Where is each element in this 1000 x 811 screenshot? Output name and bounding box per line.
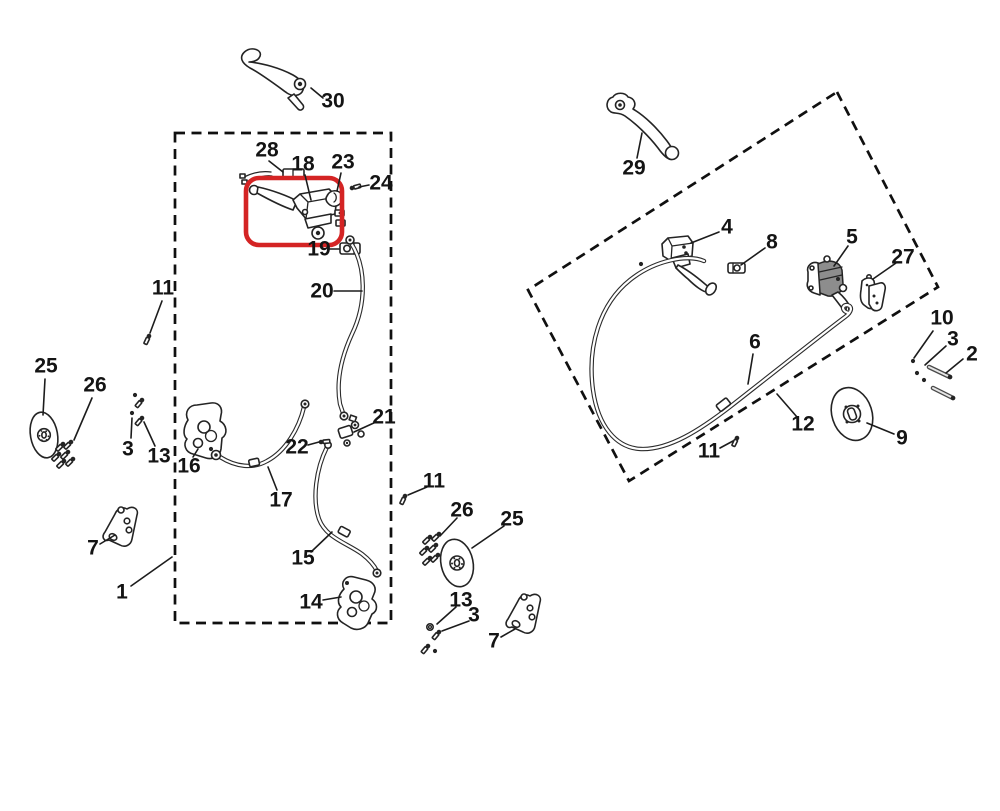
- front-upper-brake-hose-drawing: [339, 236, 363, 420]
- callout-label-13: 13: [147, 445, 170, 468]
- washer-icon: [433, 649, 437, 653]
- callout-label-1: 1: [116, 581, 128, 604]
- callout-label-30: 30: [321, 90, 344, 113]
- brake-disc-rear-drawing: [825, 382, 880, 446]
- callout-label-15: 15: [291, 547, 315, 570]
- callout-leader-17: [268, 467, 277, 490]
- callout-label-19: 19: [307, 238, 330, 261]
- callout-leader-7: [501, 629, 515, 637]
- callout-label-18: 18: [291, 153, 315, 176]
- callout-label-3: 3: [468, 604, 480, 627]
- washer-icon: [133, 393, 137, 397]
- front-brake-caliper-drawing: [184, 403, 226, 460]
- callout-label-11: 11: [152, 277, 175, 300]
- callout-label-17: 17: [269, 489, 292, 512]
- callout-leader-1: [131, 557, 172, 586]
- callout-label-8: 8: [766, 231, 778, 254]
- callout-leader-3: [442, 621, 469, 631]
- callout-label-24: 24: [369, 172, 393, 195]
- callout-leader-5: [834, 246, 848, 266]
- bolt-icon: [65, 456, 76, 467]
- callout-leader-28: [269, 161, 283, 172]
- callout-leader-3: [925, 346, 946, 365]
- callout-label-27: 27: [891, 246, 914, 269]
- rear-brake-lever-drawing: [607, 93, 678, 159]
- callout-label-22: 22: [285, 436, 308, 459]
- callout-leader-4: [691, 232, 719, 243]
- callout-label-23: 23: [331, 151, 354, 174]
- callout-label-25: 25: [34, 355, 58, 378]
- pin-icon: [929, 367, 952, 379]
- callout-label-29: 29: [622, 157, 645, 180]
- callout-label-5: 5: [846, 226, 858, 249]
- callout-label-25: 25: [500, 508, 524, 531]
- callout-label-11: 11: [423, 470, 446, 493]
- brake-pads-drawing: [860, 275, 885, 311]
- callout-label-10: 10: [930, 307, 953, 330]
- pin-icon: [933, 388, 955, 400]
- bolt-icon: [421, 643, 432, 654]
- callout-label-28: 28: [255, 139, 279, 162]
- callout-label-26: 26: [83, 374, 106, 397]
- callout-leader-11: [150, 301, 162, 333]
- bolt-icon: [135, 397, 146, 408]
- mounting-bracket-mid-drawing: [506, 594, 540, 633]
- brake-parts-diagram: 3029281823241920112526313161722211514711…: [0, 0, 1000, 811]
- callout-label-20: 20: [310, 280, 333, 303]
- callout-label-12: 12: [791, 413, 814, 436]
- washer-icon: [130, 411, 134, 415]
- callout-leader-2: [946, 359, 963, 373]
- callout-leader-6: [748, 354, 753, 384]
- callout-leader-22: [308, 442, 319, 445]
- bolt-icon: [432, 629, 443, 640]
- rear-master-cylinder-lever-drawing: [662, 236, 718, 297]
- mounting-bracket-left-drawing: [103, 507, 137, 546]
- callout-label-9: 9: [896, 427, 908, 450]
- bolt-icon: [135, 415, 146, 426]
- callout-label-7: 7: [488, 630, 500, 653]
- callout-label-4: 4: [721, 216, 733, 239]
- callout-leader-10: [914, 331, 933, 358]
- washer-icon: [911, 359, 915, 363]
- callout-label-14: 14: [299, 591, 323, 614]
- mid-brake-hose-drawing: [316, 442, 381, 577]
- callout-label-26: 26: [450, 499, 473, 522]
- callout-label-16: 16: [177, 455, 200, 478]
- callout-label-2: 2: [966, 343, 978, 366]
- washer-icon: [639, 262, 643, 266]
- callout-label-11: 11: [698, 440, 721, 463]
- lower-brake-caliper-drawing: [337, 577, 376, 630]
- callout-leader-13: [144, 422, 155, 446]
- callout-label-6: 6: [749, 331, 761, 354]
- callout-label-7: 7: [87, 537, 99, 560]
- callout-label-21: 21: [372, 406, 396, 429]
- callout-leader-25: [472, 526, 504, 548]
- brake-disc-mid-drawing: [436, 536, 477, 590]
- brake-disc-left-drawing: [27, 410, 62, 460]
- callout-leader-8: [741, 248, 765, 265]
- bolt-icon: [60, 449, 71, 460]
- parts-diagram-canvas: 3029281823241920112526313161722211514711…: [0, 0, 1000, 811]
- bolt-icon: [319, 439, 330, 445]
- front-brake-lever-drawing: [242, 49, 306, 110]
- washer-icon: [915, 371, 919, 375]
- callout-label-3: 3: [947, 328, 959, 351]
- callout-leader-26: [74, 398, 92, 440]
- bolt-icon: [143, 333, 152, 345]
- washer-ring-icon: [427, 624, 433, 630]
- washer-icon: [209, 447, 213, 451]
- front-master-cylinder-drawing: [250, 186, 338, 240]
- callout-label-3: 3: [122, 438, 134, 461]
- bolt-icon: [428, 542, 439, 553]
- callout-leader-29: [637, 133, 642, 158]
- bolt-icon: [399, 493, 408, 505]
- callout-leader-11: [720, 441, 733, 448]
- callout-leader-3: [131, 418, 132, 438]
- washer-icon: [922, 378, 926, 382]
- callout-leader-25: [43, 379, 45, 415]
